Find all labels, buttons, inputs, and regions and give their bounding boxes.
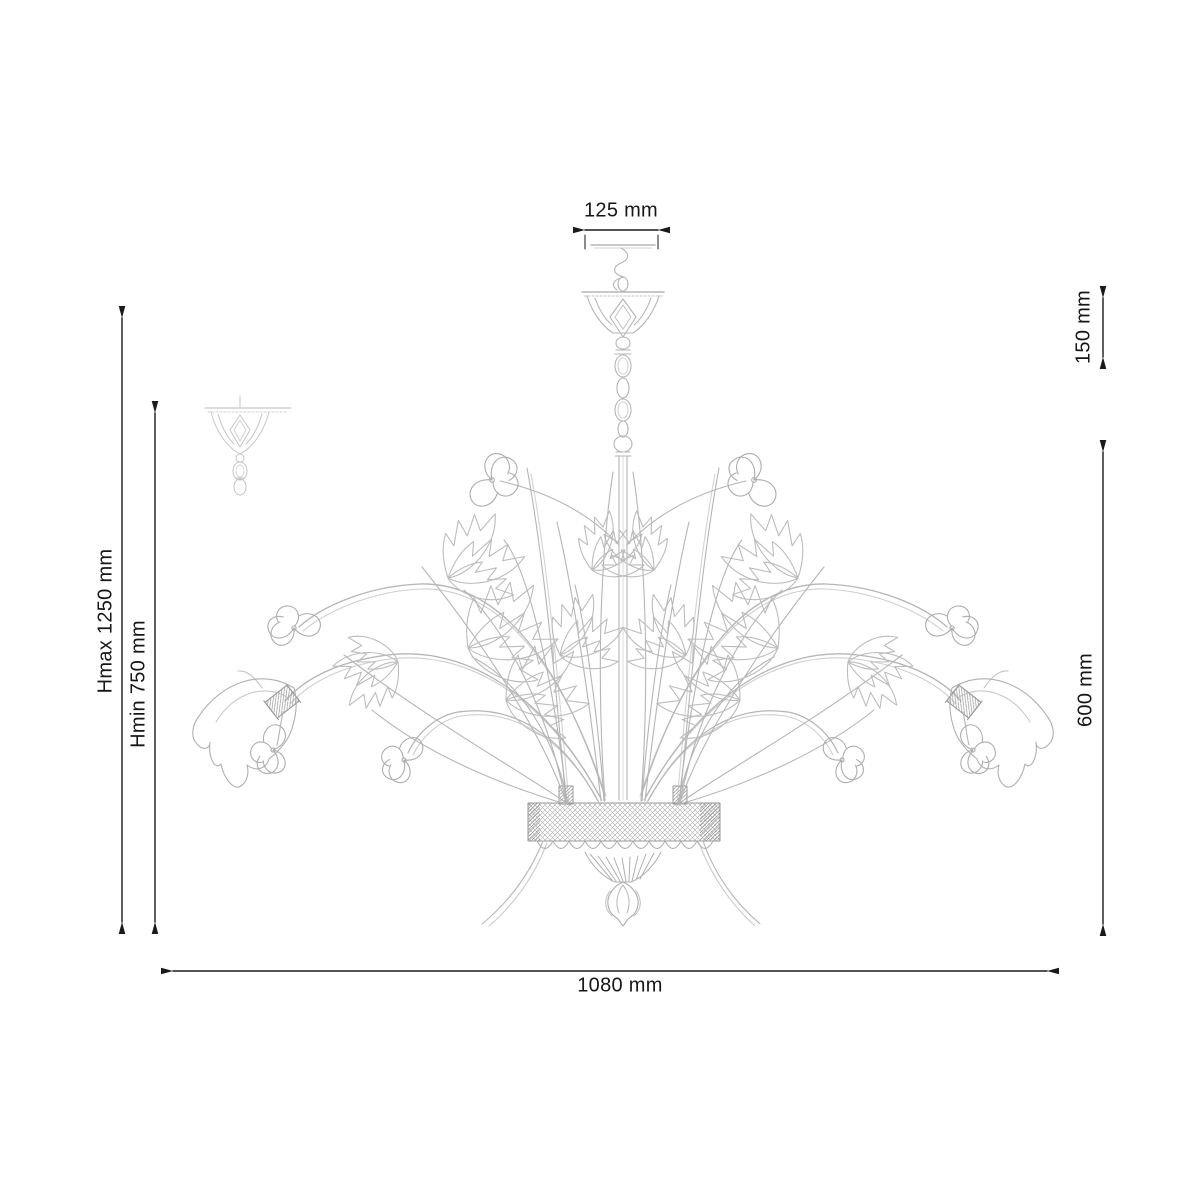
ceiling-plate xyxy=(591,245,655,248)
canopy-detail-view xyxy=(205,396,291,495)
dim-label-min-height: Hmin 750 mm xyxy=(128,620,151,748)
beaded-drum xyxy=(528,803,720,841)
dim-label-canopy-width: 125 mm xyxy=(584,200,658,223)
dim-label-canopy-height: 150 mm xyxy=(1073,290,1096,364)
left-half xyxy=(193,447,662,805)
diagram-canvas: 125 mm 150 mm Hmax 1250 mm Hmin 750 mm 6… xyxy=(0,0,1200,1200)
dimension-lines xyxy=(122,230,1103,971)
ceiling-hook xyxy=(613,248,628,291)
right-half-mirror xyxy=(584,447,1053,805)
chandelier-line-art xyxy=(0,0,1200,1200)
dim-label-total-width: 1080 mm xyxy=(577,975,662,998)
dim-canopy-width xyxy=(585,230,658,249)
chain xyxy=(614,355,632,456)
scallop-frieze xyxy=(537,841,713,849)
finial xyxy=(606,882,641,926)
dim-label-max-height: Hmax 1250 mm xyxy=(95,549,118,694)
fluted-bowl xyxy=(585,852,661,882)
dim-label-body-height: 600 mm xyxy=(1075,653,1098,727)
fixture-body xyxy=(482,786,760,926)
canopy xyxy=(582,292,664,354)
